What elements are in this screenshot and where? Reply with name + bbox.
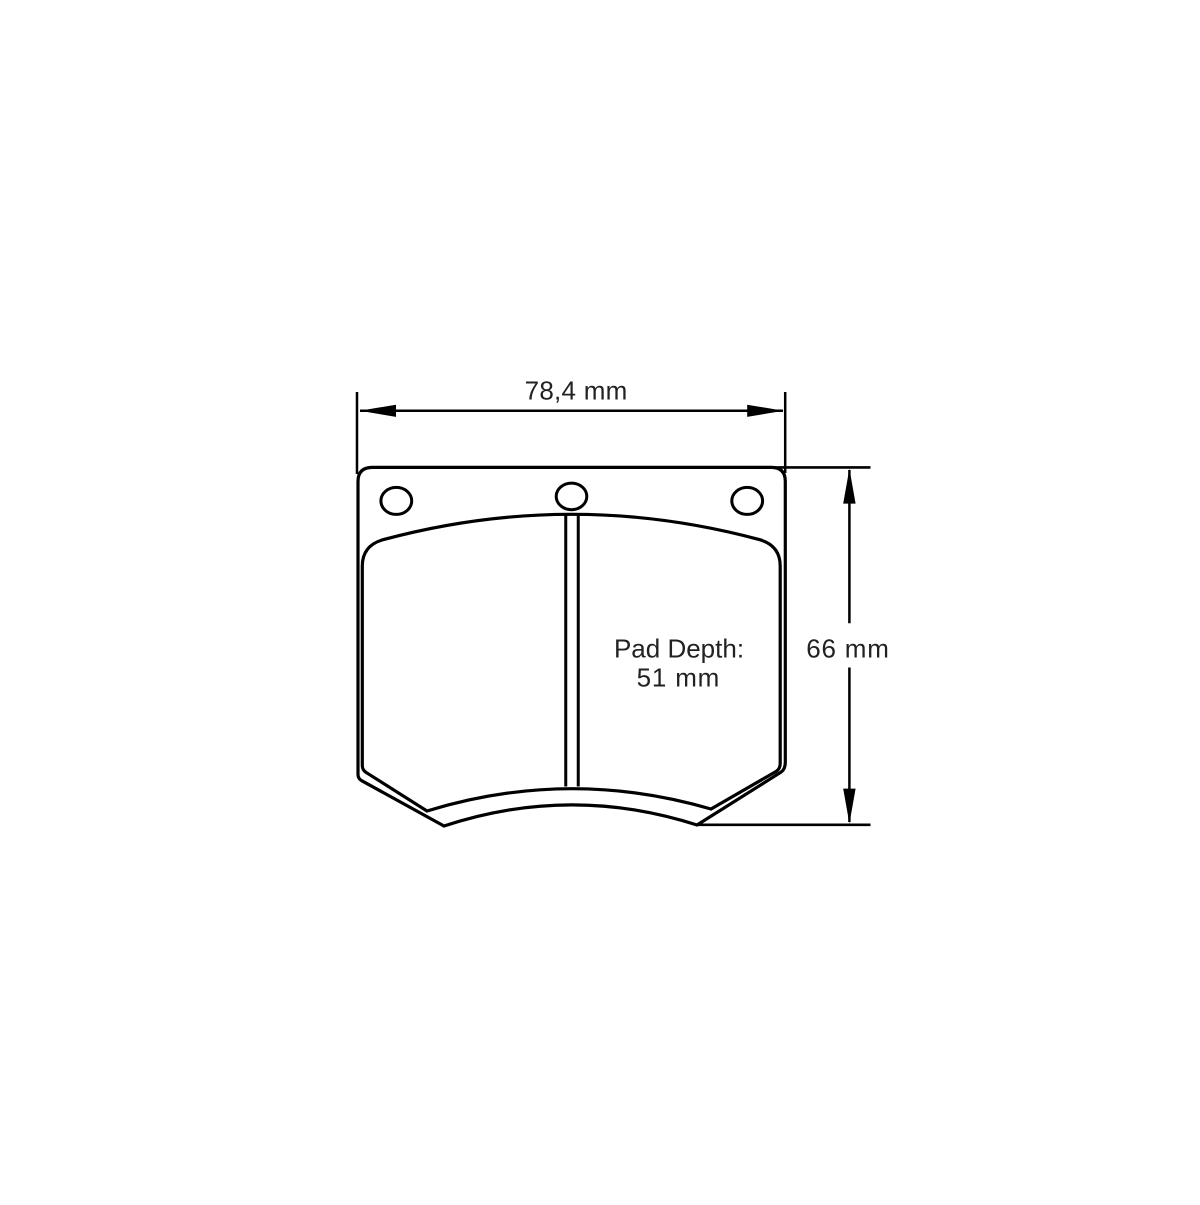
svg-text:51 mm: 51 mm [637, 663, 720, 693]
svg-text:Pad Depth:: Pad Depth: [614, 633, 744, 663]
svg-text:66 mm: 66 mm [806, 634, 889, 664]
svg-text:78,4 mm: 78,4 mm [525, 375, 628, 405]
